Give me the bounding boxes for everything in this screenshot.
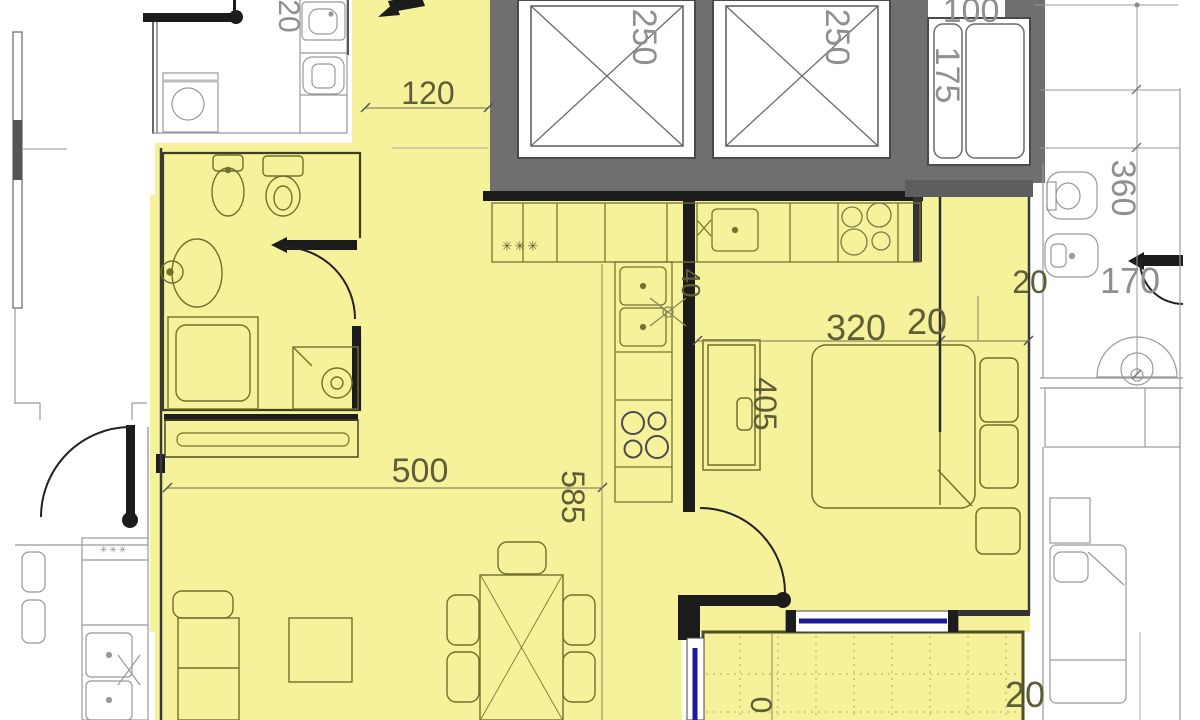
elevator-shaft-left [518, 0, 695, 158]
dim-balcony-wall: 20 [1005, 677, 1045, 713]
dim-elevator-right: 250 [820, 9, 854, 66]
window-icon [13, 32, 22, 308]
living-window [687, 638, 704, 720]
dim-bedroom-length: 405 [749, 377, 781, 430]
neighbor-kitchen-counter [82, 538, 148, 720]
toilet-icon [1047, 172, 1097, 219]
neighbor-entry-door-icon [41, 425, 138, 528]
shower-tray-icon [163, 73, 218, 132]
elevator-shaft-right [713, 0, 890, 158]
dim-shaft-depth: 175 [930, 47, 964, 104]
dim-balcony-partial: 0 [745, 697, 775, 714]
dim-living-width: 500 [392, 454, 449, 488]
dim-bedroom-width: 320 [826, 310, 886, 346]
dim-right-wall: 20 [1012, 266, 1048, 298]
dim-elevator-left: 250 [627, 9, 661, 66]
chair-icon [22, 552, 45, 592]
dim-right-bath-length: 360 [1106, 160, 1140, 217]
kitchen-hob-marks: ✳✳✳ [502, 241, 541, 254]
washbasin-icon [302, 2, 345, 40]
floor-plan: 20 250 250 100 175 120 360 170 20 40 320… [0, 0, 1200, 720]
dim-shaft-width: 100 [943, 0, 1000, 28]
dim-bedroom-wall: 20 [907, 304, 947, 340]
dim-kitchen-niche: 40 [678, 269, 704, 298]
neighbor-bathroom-door [143, 0, 243, 24]
closet-icon [1045, 388, 1180, 447]
dim-right-bath-width: 170 [1100, 263, 1160, 299]
bidet-icon [1045, 234, 1098, 277]
neighbor-left [13, 32, 148, 720]
neighbor-hob-marks: ✳✳✳ [100, 547, 129, 556]
bed-icon [1050, 545, 1126, 703]
nightstand-icon [1050, 498, 1090, 543]
dim-top-left-wall: 20 [273, 0, 303, 33]
floor-plan-drawing [0, 0, 1200, 720]
toilet-icon [303, 57, 344, 94]
balcony-window [786, 610, 958, 632]
dim-hall-width: 120 [401, 77, 454, 109]
chair-icon [22, 600, 45, 643]
dim-living-length: 585 [557, 470, 589, 523]
